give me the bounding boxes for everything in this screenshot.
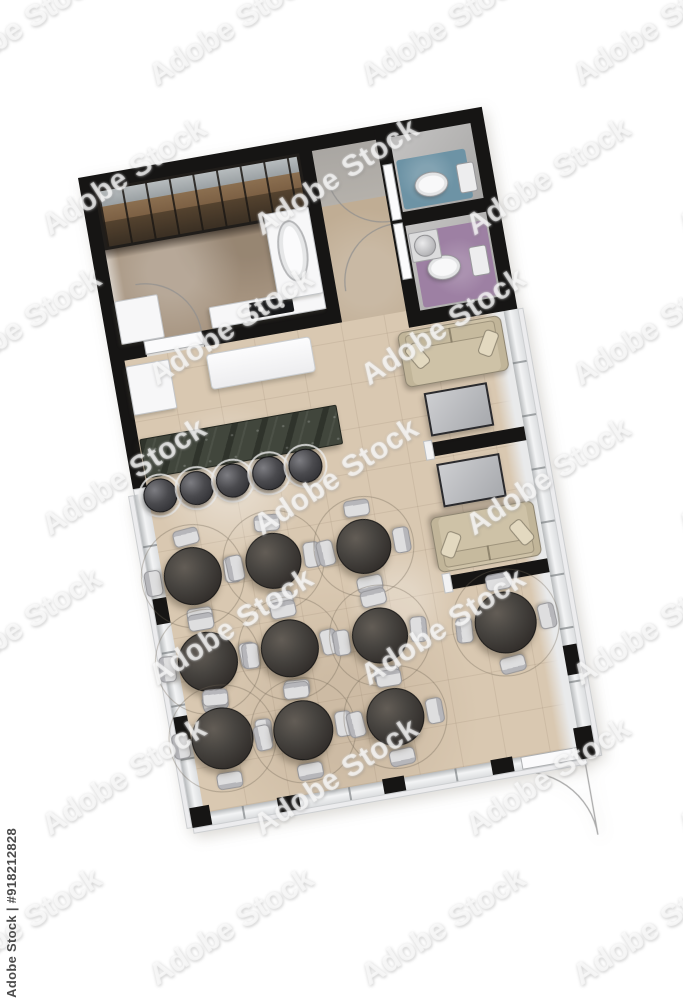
watermark-tile: Adobe Stock bbox=[672, 111, 683, 242]
watermark-tile: Adobe Stock bbox=[0, 261, 108, 392]
kitchen-cabinet-box bbox=[114, 294, 165, 345]
dining-chair bbox=[158, 655, 177, 682]
cabinet-box-outside bbox=[125, 359, 177, 416]
watermark-tile: Adobe Stock bbox=[567, 0, 683, 93]
watermark-tile: Adobe Stock bbox=[143, 861, 320, 992]
corner-bottom-left bbox=[189, 805, 212, 828]
stock-id-text: Adobe Stock | #918212828 bbox=[4, 828, 19, 998]
watermark-tile: Adobe Stock bbox=[143, 0, 320, 93]
dining-chair bbox=[282, 680, 310, 700]
watermark-tile: Adobe Stock bbox=[567, 861, 683, 992]
watermark-tile: Adobe Stock bbox=[672, 711, 683, 842]
watermark-tile: Adobe Stock bbox=[355, 0, 532, 93]
watermark-tile: Adobe Stock bbox=[355, 861, 532, 992]
watermark-tile: Adobe Stock bbox=[0, 0, 108, 93]
watermark-tile: Adobe Stock bbox=[567, 261, 683, 392]
dining-chair bbox=[240, 641, 260, 669]
dining-chair bbox=[253, 513, 281, 533]
dining-chair bbox=[202, 687, 229, 706]
stock-image-canvas: Adobe StockAdobe StockAdobe StockAdobe S… bbox=[0, 0, 683, 1000]
dining-chair bbox=[343, 498, 371, 518]
dining-chair bbox=[455, 616, 475, 644]
dining-chair bbox=[374, 667, 402, 688]
dining-chair bbox=[216, 769, 244, 790]
watermark-tile: Adobe Stock bbox=[0, 561, 108, 692]
floor-plan bbox=[78, 107, 596, 828]
toilet-bowl bbox=[413, 169, 451, 200]
watermark-tile: Adobe Stock bbox=[672, 411, 683, 542]
dining-chair bbox=[409, 615, 428, 642]
